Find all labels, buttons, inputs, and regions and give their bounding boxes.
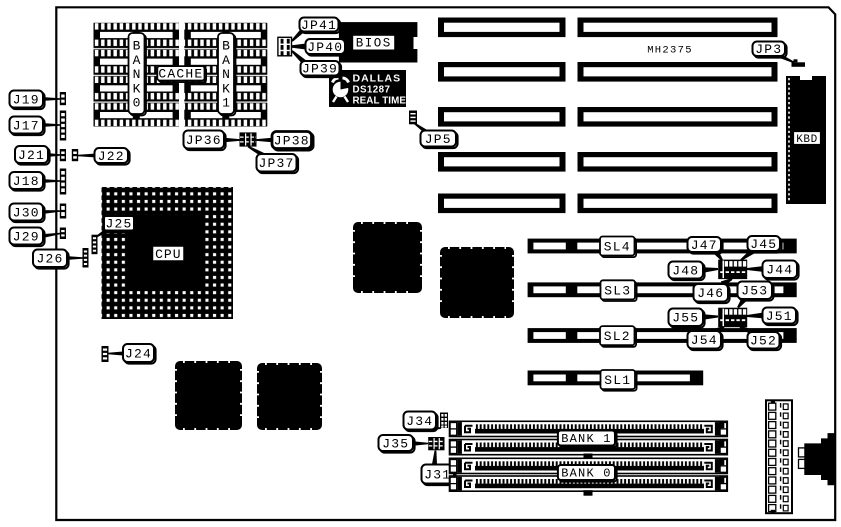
svg-text:REAL TIME: REAL TIME xyxy=(353,95,407,106)
svg-text:SL4: SL4 xyxy=(604,239,631,254)
svg-text:JP5: JP5 xyxy=(425,132,452,147)
svg-text:J17: J17 xyxy=(13,118,40,133)
svg-text:J18: J18 xyxy=(13,174,40,189)
svg-text:N: N xyxy=(222,67,230,82)
svg-text:J25: J25 xyxy=(105,217,132,232)
svg-text:J53: J53 xyxy=(741,284,768,299)
svg-text:J24: J24 xyxy=(125,346,152,361)
svg-text:SL1: SL1 xyxy=(604,373,631,388)
svg-text:BANK 0: BANK 0 xyxy=(561,467,611,481)
svg-text:N: N xyxy=(133,67,141,82)
svg-text:K: K xyxy=(133,81,141,96)
svg-text:SL3: SL3 xyxy=(604,283,631,298)
svg-text:JP40: JP40 xyxy=(307,40,343,55)
svg-text:J30: J30 xyxy=(13,205,40,220)
svg-text:J55: J55 xyxy=(672,311,699,326)
svg-text:JP38: JP38 xyxy=(274,133,310,148)
svg-text:J26: J26 xyxy=(36,252,63,267)
svg-text:0: 0 xyxy=(133,96,141,111)
svg-text:J51: J51 xyxy=(766,309,793,324)
svg-text:JP41: JP41 xyxy=(301,18,337,33)
svg-text:JP39: JP39 xyxy=(302,62,338,77)
svg-text:J19: J19 xyxy=(13,92,40,107)
svg-text:BANK 1: BANK 1 xyxy=(561,432,611,446)
svg-text:J44: J44 xyxy=(766,263,793,278)
svg-text:J35: J35 xyxy=(382,436,409,451)
svg-text:A: A xyxy=(133,53,141,68)
svg-text:DS1287: DS1287 xyxy=(353,84,391,95)
svg-text:K: K xyxy=(222,81,230,96)
svg-text:B: B xyxy=(133,39,141,54)
svg-text:SL2: SL2 xyxy=(604,329,631,344)
svg-text:J52: J52 xyxy=(750,334,777,349)
svg-text:KBD: KBD xyxy=(796,134,818,146)
svg-text:MH2375: MH2375 xyxy=(647,45,693,57)
svg-text:JP36: JP36 xyxy=(186,133,222,148)
svg-text:CACHE: CACHE xyxy=(158,67,203,82)
svg-text:J22: J22 xyxy=(98,149,125,164)
svg-text:J34: J34 xyxy=(406,414,433,429)
svg-text:J45: J45 xyxy=(750,237,777,252)
svg-text:JP37: JP37 xyxy=(258,156,294,171)
svg-text:J29: J29 xyxy=(13,229,40,244)
svg-text:BIOS: BIOS xyxy=(356,37,392,51)
svg-text:1: 1 xyxy=(222,96,230,111)
svg-text:JP3: JP3 xyxy=(755,42,782,57)
svg-text:J31: J31 xyxy=(424,467,451,482)
svg-text:B: B xyxy=(222,39,230,54)
svg-text:J54: J54 xyxy=(691,333,718,348)
svg-text:J47: J47 xyxy=(691,238,718,253)
svg-text:CPU: CPU xyxy=(155,247,181,262)
svg-text:J21: J21 xyxy=(18,148,45,163)
svg-text:DALLAS: DALLAS xyxy=(353,73,402,85)
svg-text:J46: J46 xyxy=(697,286,724,301)
svg-text:A: A xyxy=(222,53,230,68)
svg-text:J48: J48 xyxy=(672,263,699,278)
